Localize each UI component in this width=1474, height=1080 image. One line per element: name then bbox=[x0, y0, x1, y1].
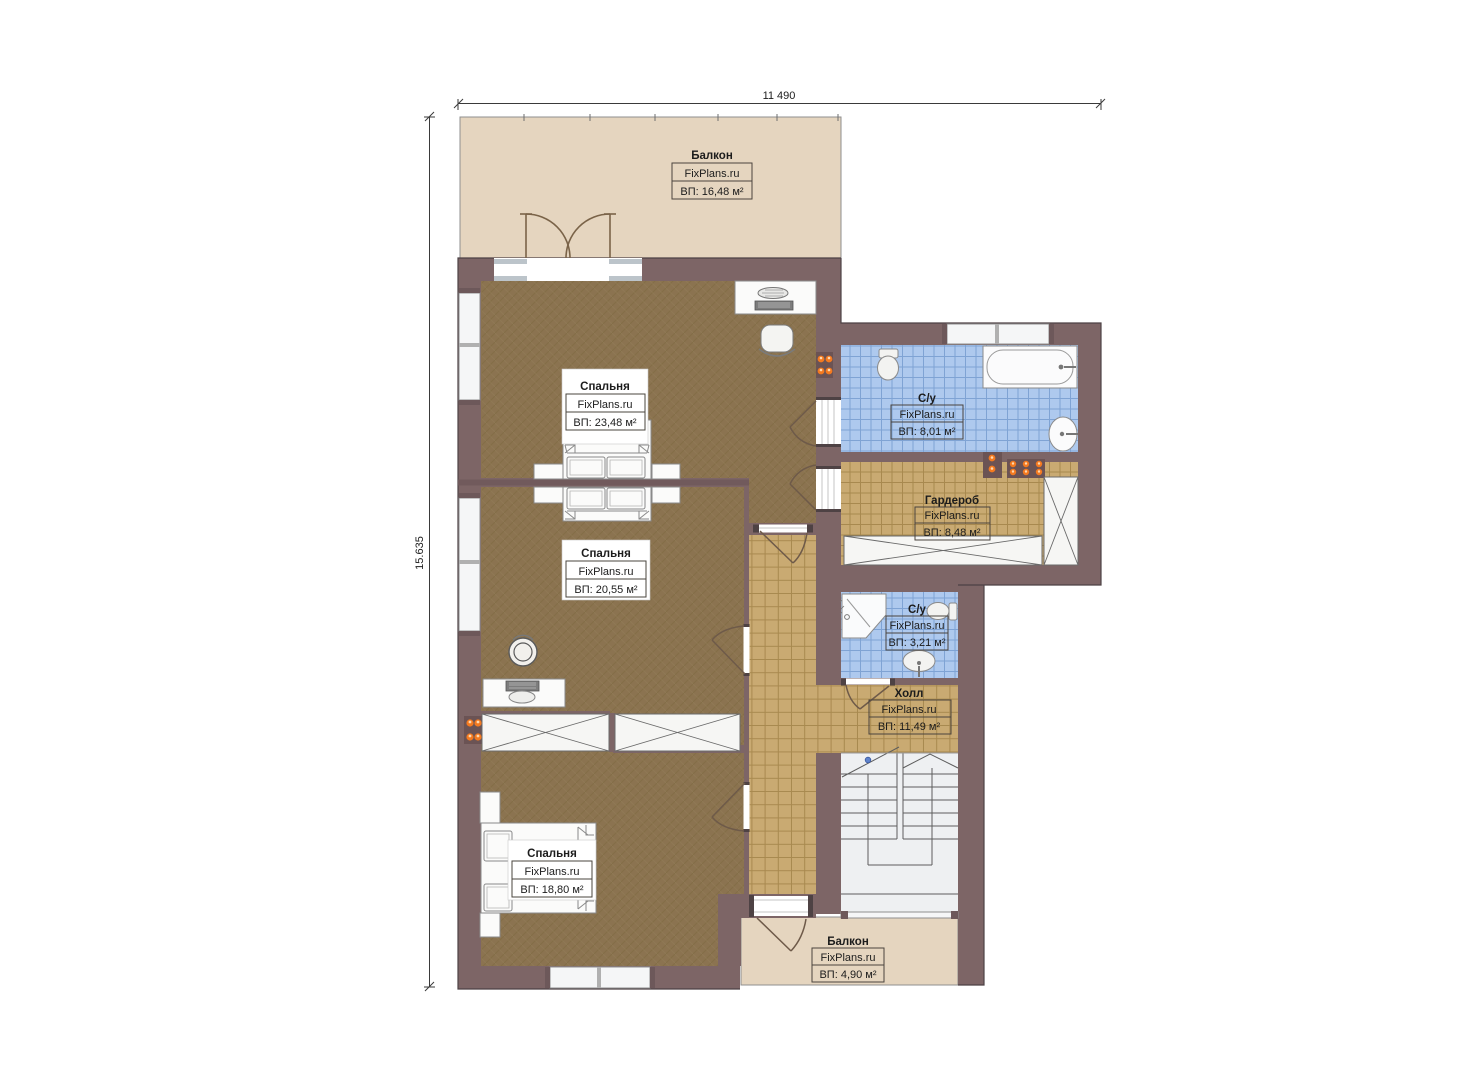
svg-text:С/у: С/у bbox=[918, 393, 937, 405]
svg-text:ВП: 11,49 м²: ВП: 11,49 м² bbox=[878, 721, 941, 733]
svg-text:Холл: Холл bbox=[895, 688, 924, 700]
svg-text:ВП: 23,48 м²: ВП: 23,48 м² bbox=[573, 417, 637, 429]
svg-text:FixPlans.ru: FixPlans.ru bbox=[924, 510, 979, 522]
svg-text:Балкон: Балкон bbox=[691, 150, 733, 162]
svg-text:FixPlans.ru: FixPlans.ru bbox=[524, 866, 579, 878]
svg-text:FixPlans.ru: FixPlans.ru bbox=[577, 399, 632, 411]
svg-text:С/у: С/у bbox=[908, 604, 927, 616]
svg-text:ВП: 3,21 м²: ВП: 3,21 м² bbox=[888, 637, 945, 649]
svg-text:15.635: 15.635 bbox=[414, 536, 426, 570]
svg-text:ВП: 20,55 м²: ВП: 20,55 м² bbox=[574, 584, 638, 596]
svg-text:FixPlans.ru: FixPlans.ru bbox=[820, 952, 875, 964]
svg-text:FixPlans.ru: FixPlans.ru bbox=[684, 168, 739, 180]
svg-text:FixPlans.ru: FixPlans.ru bbox=[578, 566, 633, 578]
svg-text:Спальня: Спальня bbox=[581, 548, 631, 560]
svg-text:Гардероб: Гардероб bbox=[925, 495, 979, 507]
svg-text:ВП: 16,48 м²: ВП: 16,48 м² bbox=[680, 186, 744, 198]
svg-text:ВП: 8,01 м²: ВП: 8,01 м² bbox=[898, 426, 955, 438]
svg-text:ВП: 8,48 м²: ВП: 8,48 м² bbox=[923, 527, 980, 539]
svg-text:FixPlans.ru: FixPlans.ru bbox=[899, 409, 954, 421]
svg-text:Балкон: Балкон bbox=[827, 936, 869, 948]
svg-text:FixPlans.ru: FixPlans.ru bbox=[881, 704, 936, 716]
svg-text:ВП: 4,90 м²: ВП: 4,90 м² bbox=[819, 969, 876, 981]
svg-text:Спальня: Спальня bbox=[580, 381, 630, 393]
svg-text:FixPlans.ru: FixPlans.ru bbox=[889, 620, 944, 632]
svg-text:11 490: 11 490 bbox=[763, 90, 796, 102]
svg-text:Спальня: Спальня bbox=[527, 848, 577, 860]
svg-text:ВП: 18,80 м²: ВП: 18,80 м² bbox=[520, 884, 584, 896]
